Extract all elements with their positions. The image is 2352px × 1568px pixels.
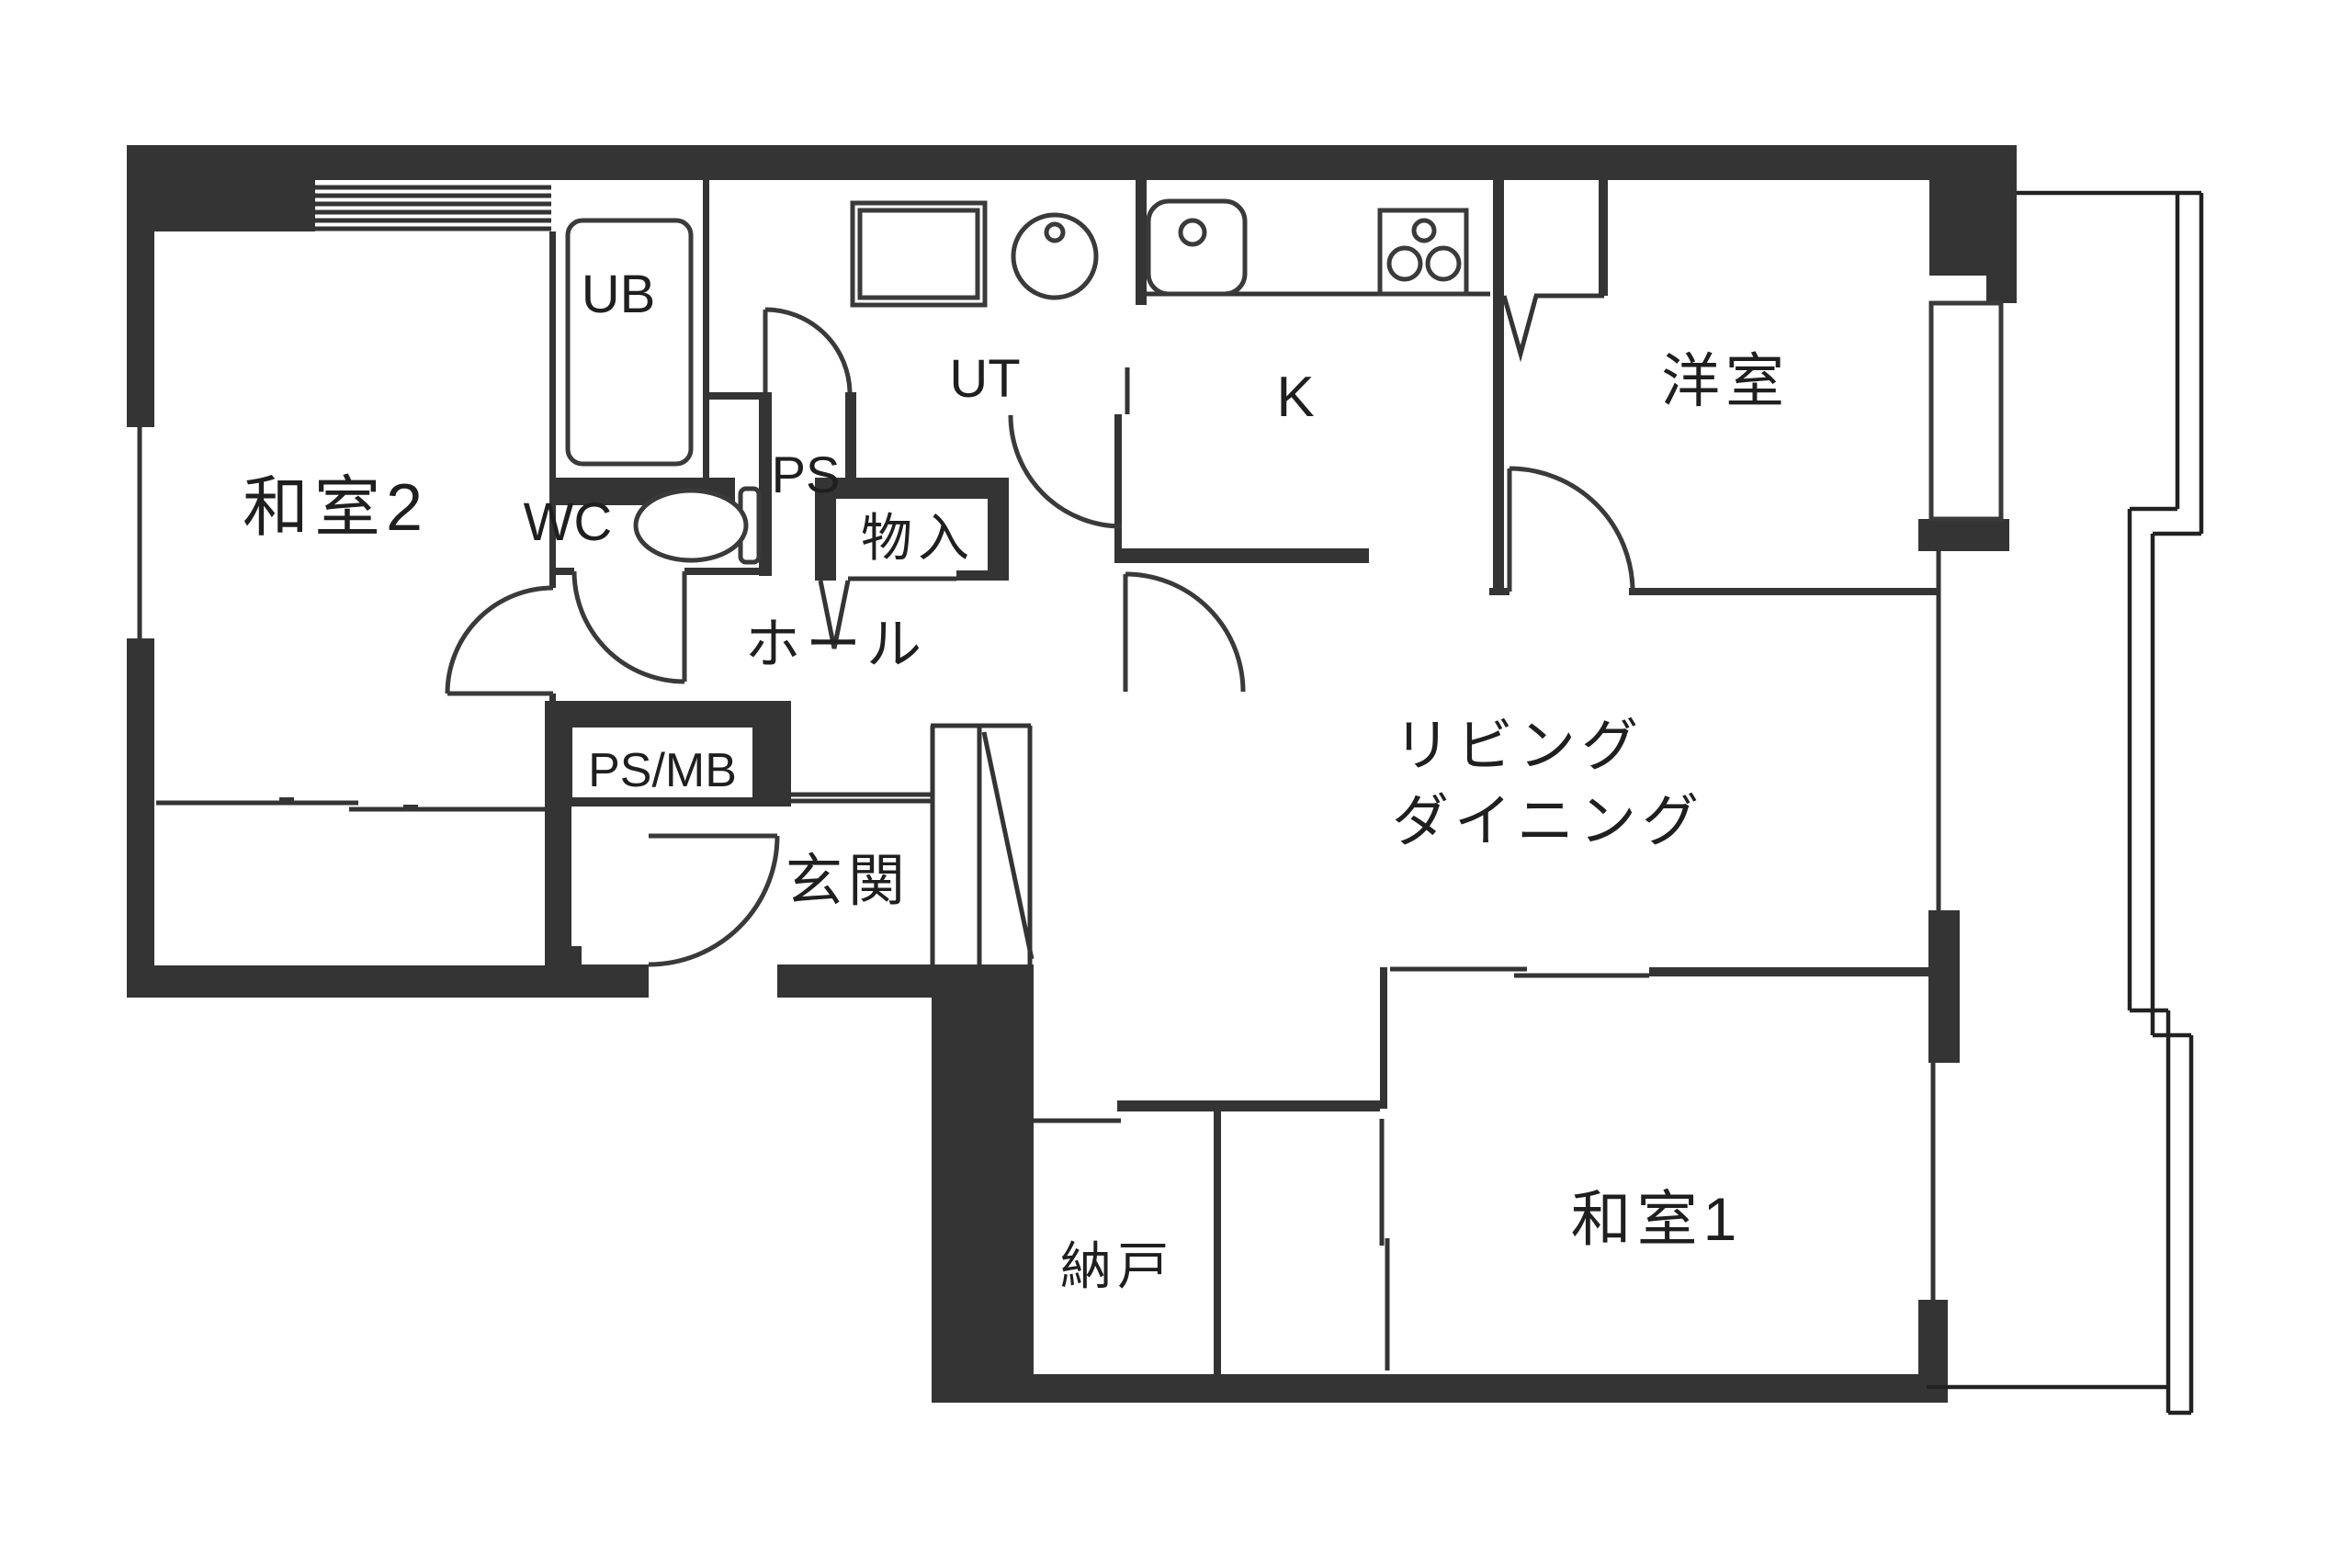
entrance-door-leaf (984, 732, 1032, 959)
hall-kitchen-door-swing (1011, 415, 1122, 526)
wall-k-bottom (1122, 548, 1369, 563)
room-label-psmb: PS/MB (588, 744, 737, 797)
window-youshitsu-right (1931, 303, 2001, 519)
room-label-nando: 納戸 (1060, 1237, 1174, 1295)
wall-youshitsu-bottom-stub (1489, 588, 1510, 595)
room-label-washitsu2: 和室2 (243, 471, 428, 545)
room-label-monoire: 物入 (861, 509, 975, 567)
wall-left-lower (127, 638, 154, 998)
wall-topright-corner (1929, 145, 2017, 276)
washbasin (1013, 215, 1096, 298)
wall-washitsu1-left (1380, 967, 1387, 1109)
wall-k-ut (1136, 180, 1147, 305)
toilet-bowl (636, 491, 746, 560)
genkan-door-swing (649, 836, 777, 964)
wall-bottom-right (1034, 1374, 1948, 1403)
wall-nando-right (1214, 1111, 1221, 1374)
room-label-youshitsu: 洋室 (1661, 348, 1790, 414)
wall-topleft-corner (127, 145, 315, 231)
wall-youshitsu-closet-right (1599, 180, 1608, 296)
room-label-living: リビング (1394, 715, 1644, 778)
floor-plan: 和室2 UB WC PS 物入 UT ホール PS/MB 玄関 K 洋室 リビン… (0, 0, 2352, 1568)
washer-space (853, 203, 985, 305)
wall-k-hall (1114, 414, 1122, 563)
room-label-kitchen: K (1276, 366, 1314, 429)
room-label-ub: UB (582, 265, 656, 324)
bathtub (568, 220, 691, 464)
washitsu2-closet-tick-2 (403, 805, 418, 811)
wall-wc-ps (684, 568, 759, 575)
room-label-ut: UT (949, 349, 1020, 409)
wall-band-below-genkan (932, 964, 1034, 1403)
wall-washitsu2-bottom (127, 965, 582, 998)
kitchen-sink (1148, 201, 1245, 294)
washitsu2-door-swing (447, 588, 553, 694)
wall-hall-top-left (556, 568, 574, 575)
wall-top-band (127, 145, 1929, 180)
hall-ld-door-swing (1125, 574, 1243, 692)
wall-k-youshitsu (1493, 180, 1504, 592)
room-label-hall: ホール (745, 614, 927, 675)
washitsu2-closet-tick-1 (279, 797, 294, 804)
wc-door-swing (574, 571, 684, 682)
wall-left-upper (127, 145, 154, 427)
wall-topright-step (1986, 276, 2017, 303)
room-label-ps: PS (772, 446, 841, 503)
wall-genkan-bottom-left (545, 964, 649, 998)
room-label-genkan: 玄関 (786, 850, 910, 913)
room-label-dining: ダイニング (1392, 790, 1704, 853)
pillar-washitsu1-bottom (1918, 1300, 1948, 1375)
room-label-washitsu1: 和室1 (1571, 1185, 1743, 1253)
hatch-strip (315, 180, 551, 231)
floor-plan-page: 和室2 UB WC PS 物入 UT ホール PS/MB 玄関 K 洋室 リビン… (0, 0, 2352, 1568)
youshitsu-closet-notch (1504, 296, 1536, 354)
room-label-wc: WC (524, 492, 613, 552)
youshitsu-door-swing (1510, 468, 1633, 592)
monoire-bottom-stub (956, 570, 1009, 581)
wall-nando-top (1117, 1100, 1380, 1111)
wall-ut-hall (709, 392, 765, 400)
wall-youshitsu-bottom (1629, 588, 1939, 595)
wall-ld-washitsu1 (1649, 967, 1928, 976)
pillar-youshitsu-bottom (1918, 519, 2009, 551)
pillar-ld-washitsu1 (1928, 910, 1960, 1063)
ut-door-swing (765, 310, 850, 392)
wall-genkan-bottom-right (777, 964, 932, 998)
wall-ub-ut (703, 180, 709, 478)
